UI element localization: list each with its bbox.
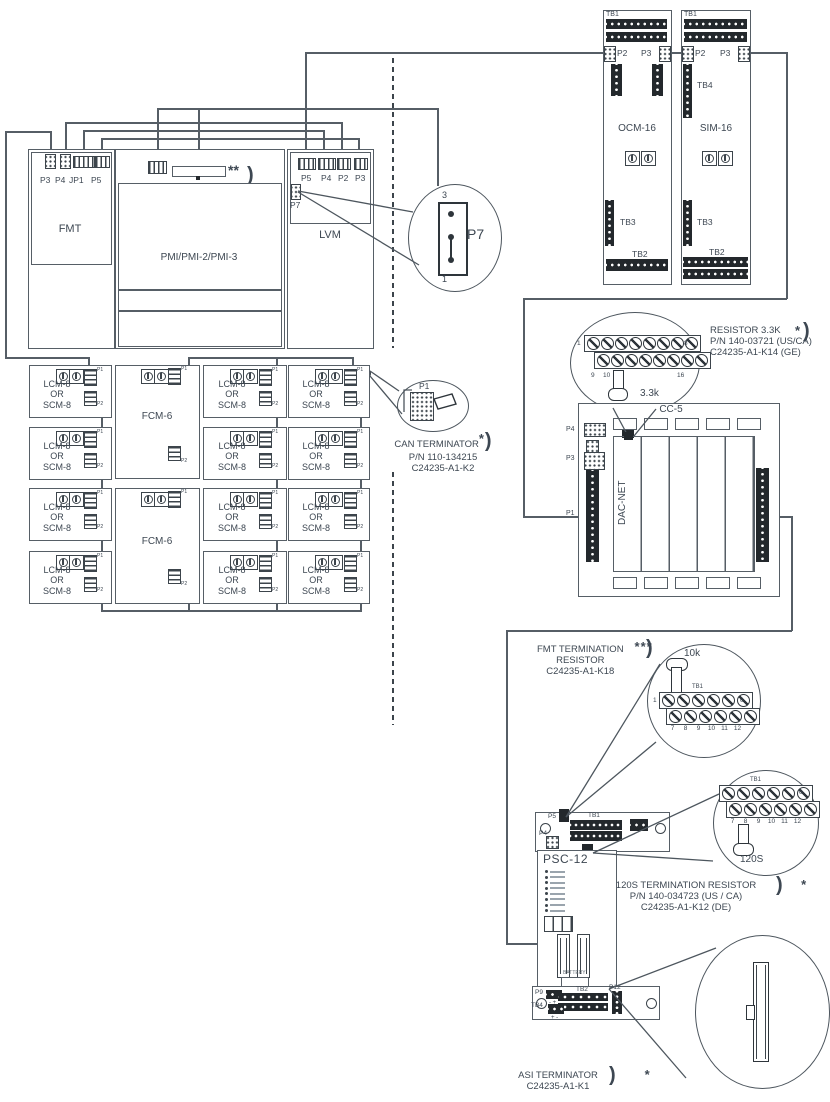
sim-tb2-row: [683, 257, 748, 267]
r33k-terminal-number: 9: [591, 372, 595, 379]
fcm-module: P1 P2 FCM-6: [115, 365, 200, 479]
fmt-term-note: FMT TERMINATION RESISTOR C24235-A1-K18: [537, 645, 624, 678]
lcm-scm-module: P1 P2 LCM-8ORSCM-8: [288, 551, 370, 604]
pmi-module: [118, 183, 282, 290]
fcm-connector-p2: [168, 446, 181, 461]
lcm-connector-p1: [84, 492, 97, 509]
lcm-label: LCM-8ORSCM-8: [218, 441, 246, 472]
lcm-scm-module: P1 P2 LCM-8ORSCM-8: [29, 365, 112, 418]
lcm-connector-p1: [259, 369, 272, 386]
wire: [437, 108, 439, 186]
lvm-label: LVM: [319, 229, 341, 242]
fcm-p1-label: P1: [181, 490, 187, 496]
lcm-p1-label: P1: [357, 554, 363, 560]
sim-connector-p2: [682, 46, 694, 62]
lcm-connector-p2: [344, 453, 357, 468]
sim-tb4-strip: [683, 64, 692, 118]
sim-tb2-row: [683, 269, 748, 279]
lcm-p2-label: P2: [357, 464, 363, 470]
lcm-connector-p1: [259, 431, 272, 448]
lcm-connector-p1: [84, 431, 97, 448]
fcm-p2-label: P2: [181, 582, 187, 588]
lcm-connector-p1: [84, 369, 97, 386]
psc12-tb2-row: [558, 993, 608, 1001]
lvm-port-label: P4: [321, 174, 331, 184]
lcm-p1-label: P1: [357, 368, 363, 374]
psc12-connector-right: [630, 819, 648, 831]
rotary-switch: [154, 492, 169, 507]
psc12-battery-label: BATTERY: [563, 971, 586, 977]
wire: [5, 131, 51, 133]
lvm-port-label: P7: [290, 201, 300, 211]
cc5-top-tabs: [613, 418, 761, 430]
lcm-connector-p2: [259, 453, 272, 468]
fcm-p2-label: P2: [181, 459, 187, 465]
lcm-p2-label: P2: [272, 588, 278, 594]
pmi-band: [118, 311, 282, 347]
lcm-p1-label: P1: [97, 554, 103, 560]
psc12-connector-p4: [546, 836, 559, 849]
ocm-p2-label: P2: [617, 49, 627, 59]
rotary-switch: [328, 555, 343, 570]
fmt-term-paren: ): [646, 637, 653, 660]
wire: [747, 52, 787, 54]
ocm-label: OCM-16: [618, 123, 656, 135]
sim-tb1-row: [684, 32, 747, 42]
fmt-port-label: P4: [55, 176, 65, 186]
sim-tb3-strip: [683, 200, 692, 246]
psc12-tb4-polarity: + -: [551, 1015, 558, 1022]
lcm-label: LCM-8ORSCM-8: [302, 441, 330, 472]
lcm-p1-label: P1: [272, 554, 278, 560]
lvm-port-label: P5: [301, 174, 311, 184]
wire: [523, 298, 525, 517]
fmt-port-label: JP1: [69, 176, 84, 186]
cc5-p3-label: P3: [566, 455, 575, 463]
psc12-tb1-row: [570, 820, 622, 830]
asi-paren: ): [609, 1064, 616, 1087]
r33k-star: *: [795, 323, 801, 338]
ocm-module: TB1 P2 P3 OCM-16 TB3 TB2: [603, 10, 672, 285]
lcm-label: LCM-8ORSCM-8: [218, 502, 246, 533]
wire: [305, 52, 307, 159]
lcm-p2-label: P2: [272, 402, 278, 408]
cc5-connector-p4: [584, 423, 606, 437]
r10k-terminal-number: 6: [740, 697, 744, 704]
lcm-connector-p2: [84, 577, 97, 592]
r33k-resistor-cap: [608, 388, 628, 401]
rotary-switch: [702, 151, 717, 166]
lvm-connector-p2: [337, 158, 351, 170]
psc12-p9-label: P9: [535, 989, 543, 996]
ocm-tb1-row: [606, 32, 667, 42]
wire: [786, 52, 788, 299]
lcm-label: LCM-8ORSCM-8: [218, 565, 246, 596]
lcm-p1-label: P1: [357, 430, 363, 436]
lcm-label: LCM-8ORSCM-8: [43, 441, 71, 472]
wire: [5, 131, 7, 358]
wire: [101, 610, 362, 612]
ocm-tb1-row: [606, 19, 667, 29]
fcm-connector-p1: [168, 491, 181, 508]
ocm-tb3-label: TB3: [620, 218, 636, 228]
rotary-switch: [154, 369, 169, 384]
lcm-connector-p2: [259, 391, 272, 406]
lcm-p2-label: P2: [272, 525, 278, 531]
fmt-connector-p3: [45, 154, 56, 169]
psc12-dip-switch: [544, 916, 573, 932]
pmi-slot-tick: [196, 176, 200, 180]
r33k-paren: ): [803, 320, 810, 343]
cc5-p1-label: P1: [566, 510, 575, 518]
cc5-label: CC-5: [659, 404, 682, 416]
lcm-p1-label: P1: [357, 491, 363, 497]
sim-tb1-label: TB1: [684, 11, 697, 19]
pmi-connector: [148, 161, 167, 174]
lcm-connector-p1: [344, 555, 357, 572]
rotary-switch: [328, 369, 343, 384]
can-note: CAN TERMINATOR*) P/N 110-134215 C24235-A…: [383, 430, 503, 475]
p7-pin-number: 3: [442, 190, 447, 200]
dashed-divider-top: [392, 58, 394, 348]
lcm-p1-label: P1: [97, 368, 103, 374]
lcm-p2-label: P2: [97, 525, 103, 531]
r33k-terminal-number: 16: [677, 372, 684, 379]
cc5-connector-p1: [586, 470, 599, 562]
lcm-connector-p2: [84, 391, 97, 406]
lcm-p1-label: P1: [272, 430, 278, 436]
wire: [65, 122, 342, 124]
rotary-switch: [69, 431, 84, 446]
lcm-label: LCM-8ORSCM-8: [43, 565, 71, 596]
lcm-connector-p1: [84, 555, 97, 572]
fcm-p1-label: P1: [181, 367, 187, 373]
lcm-label: LCM-8ORSCM-8: [43, 379, 71, 410]
lcm-label: LCM-8ORSCM-8: [43, 502, 71, 533]
lcm-connector-p2: [259, 577, 272, 592]
can-connector: [410, 392, 434, 421]
lcm-label: LCM-8ORSCM-8: [302, 379, 330, 410]
r10k-terminal-numbers: 789101112: [666, 725, 744, 732]
r10k-terminal-row: [666, 708, 760, 725]
lcm-connector-p1: [259, 555, 272, 572]
rotary-switch: [69, 492, 84, 507]
fcm-connector-p2: [168, 569, 181, 584]
lcm-connector-p2: [344, 391, 357, 406]
fmt-label: FMT: [59, 223, 82, 236]
r33k-terminal-number: 1: [577, 340, 581, 347]
lcm-p2-label: P2: [97, 588, 103, 594]
fmt-port-label: P5: [91, 176, 101, 186]
lcm-label: LCM-8ORSCM-8: [302, 502, 330, 533]
sim-tb4-label: TB4: [697, 81, 713, 91]
lcm-scm-module: P1 P2 LCM-8ORSCM-8: [29, 427, 112, 480]
wire: [101, 138, 359, 140]
psc12-led-column: [545, 870, 565, 912]
asi-terminator-bar: [753, 962, 769, 1062]
mounting-hole: [655, 823, 666, 834]
asi-star: *: [645, 1067, 651, 1082]
ocm-tb1-label: TB1: [606, 11, 619, 19]
sim-p2-label: P2: [695, 49, 705, 59]
lcm-p1-label: P1: [97, 491, 103, 497]
ocm-p3-label: P3: [641, 49, 651, 59]
asi-note: ASI TERMINATOR C24235-A1-K1: [498, 1071, 618, 1093]
ocm-connector-strip: [652, 64, 663, 96]
cc5-connector-right: [756, 468, 769, 562]
sim-connector-p3: [738, 46, 750, 62]
ocm-tb2-row: [606, 259, 668, 271]
wire: [791, 516, 793, 631]
lvm-connector-p7: [291, 184, 301, 200]
asi-bar-nub: [746, 1005, 755, 1020]
r120-paren: ): [776, 874, 783, 897]
fmt-connector-jp1: [73, 156, 95, 168]
cc5-bottom-tabs: [613, 577, 761, 589]
rotary-switch: [328, 492, 343, 507]
psc12-tb1-label: TB1: [588, 812, 600, 819]
lcm-scm-module: P1 P2 LCM-8ORSCM-8: [203, 551, 287, 604]
fcm-label: FCM-6: [142, 411, 173, 423]
lcm-connector-p2: [84, 514, 97, 529]
rotary-switch: [69, 369, 84, 384]
lcm-p2-label: P2: [97, 464, 103, 470]
wire: [506, 630, 508, 944]
fmt-connector-p5: [95, 156, 110, 168]
rotary-switch: [69, 555, 84, 570]
lcm-scm-module: P1 P2 LCM-8ORSCM-8: [29, 488, 112, 541]
sim-tb3-label: TB3: [697, 218, 713, 228]
fcm-label: FCM-6: [142, 536, 173, 548]
r120-value: 120S: [740, 854, 763, 866]
r10k-terminal-row: [659, 692, 753, 709]
lcm-scm-module: P1 P2 LCM-8ORSCM-8: [29, 551, 112, 604]
mounting-hole: [646, 998, 657, 1009]
sim-label: SIM-16: [700, 123, 732, 135]
lcm-p2-label: P2: [97, 402, 103, 408]
wiring-diagram: P3 P4 JP1 P5 FMT ** ) PMI/PMI-2/PMI-3 P5…: [0, 0, 830, 1102]
ocm-connector-p3: [659, 46, 671, 62]
sim-module: TB1 P2 P3 TB4 SIM-16 TB3 TB2: [681, 10, 751, 285]
wire: [523, 298, 787, 300]
lvm-port-label: P3: [355, 174, 365, 184]
psc12-tb1-row: [570, 831, 622, 841]
wire: [188, 357, 353, 359]
cc5-p4-label: P4: [566, 426, 575, 434]
fcm-connector-p1: [168, 368, 181, 385]
lcm-p2-label: P2: [357, 402, 363, 408]
rotary-switch: [718, 151, 733, 166]
lcm-label: LCM-8ORSCM-8: [302, 565, 330, 596]
sim-tb1-row: [684, 19, 747, 29]
wire: [5, 357, 89, 359]
fmt-connector-p4: [60, 154, 71, 169]
lcm-label: LCM-8ORSCM-8: [218, 379, 246, 410]
lcm-connector-p1: [344, 431, 357, 448]
lcm-connector-p1: [259, 492, 272, 509]
r33k-terminal-number: 10: [603, 372, 610, 379]
lvm-port-label: P2: [338, 174, 348, 184]
lcm-connector-p1: [344, 492, 357, 509]
p7-pin: [448, 211, 454, 217]
sim-p3-label: P3: [720, 49, 730, 59]
lcm-scm-module: P1 P2 LCM-8ORSCM-8: [288, 365, 370, 418]
r33k-terminal-number: 8: [684, 340, 688, 347]
lcm-connector-p2: [344, 514, 357, 529]
r120-tb1-label: TB1: [750, 777, 761, 784]
wire: [83, 130, 324, 132]
r33k-terminal-row: [594, 352, 711, 369]
rotary-switch: [625, 151, 640, 166]
r120-star: *: [801, 877, 807, 892]
p7-jumper-bar: [450, 237, 452, 260]
lcm-p1-label: P1: [97, 430, 103, 436]
psc12-tb4-label: TB4: [531, 1002, 543, 1009]
ocm-connector-strip: [611, 64, 622, 96]
rotary-switch: [641, 151, 656, 166]
pmi-band: [118, 290, 282, 311]
p7-callout-label: P7: [467, 226, 484, 242]
lcm-connector-p2: [259, 514, 272, 529]
lvm-connector-p3: [354, 158, 368, 170]
lcm-scm-module: P1 P2 LCM-8ORSCM-8: [203, 427, 287, 480]
cc5-connector-p3: [584, 452, 605, 470]
p7-pin-number: 1: [442, 274, 447, 284]
psc12-connector-p12: [612, 991, 622, 1014]
fmt-module: [31, 152, 112, 265]
r10k-value: 10k: [684, 648, 700, 660]
lcm-scm-module: P1 P2 LCM-8ORSCM-8: [288, 488, 370, 541]
cc5-dacnet-label: DAC-NET: [617, 441, 637, 565]
ocm-tb3-strip: [605, 200, 614, 246]
ocm-connector-p2: [604, 46, 616, 62]
lcm-p2-label: P2: [272, 464, 278, 470]
r120-terminal-number: 6: [799, 789, 803, 796]
fmt-port-label: P3: [40, 176, 50, 186]
wire: [506, 630, 792, 632]
r120-terminal-row: [726, 801, 820, 818]
lvm-connector-p5: [298, 158, 316, 170]
pmi-label: PMI/PMI-2/PMI-3: [161, 252, 238, 264]
rotary-switch: [328, 431, 343, 446]
psc12-tb2-row: [558, 1003, 608, 1011]
lcm-scm-module: P1 P2 LCM-8ORSCM-8: [203, 365, 287, 418]
r120-note: 120S TERMINATION RESISTOR P/N 140-034723…: [606, 881, 766, 914]
lcm-p1-label: P1: [272, 491, 278, 497]
lcm-connector-p2: [84, 453, 97, 468]
lcm-connector-p2: [344, 577, 357, 592]
psc12-label: PSC-12: [543, 853, 588, 867]
wire: [305, 52, 605, 54]
lvm-connector-p4: [318, 158, 336, 170]
lcm-p1-label: P1: [272, 368, 278, 374]
lcm-p2-label: P2: [357, 588, 363, 594]
lcm-scm-module: P1 P2 LCM-8ORSCM-8: [288, 427, 370, 480]
psc12-termination-plug: [559, 809, 569, 822]
can-port-label: P1: [419, 382, 429, 392]
psc12-p5-label: P5: [548, 813, 556, 820]
r10k-tb1-label: TB1: [692, 684, 703, 691]
lcm-connector-p1: [344, 369, 357, 386]
fcm-module: P1 P2 FCM-6: [115, 488, 200, 604]
lcm-p2-label: P2: [357, 525, 363, 531]
psc12-connector-tb4: [548, 1004, 564, 1014]
r33k-value: 3.3k: [640, 388, 659, 400]
pmi-star-note: **: [228, 162, 239, 178]
dashed-divider-bottom: [392, 472, 394, 725]
lcm-scm-module: P1 P2 LCM-8ORSCM-8: [203, 488, 287, 541]
r10k-terminal-number: 1: [653, 697, 657, 704]
